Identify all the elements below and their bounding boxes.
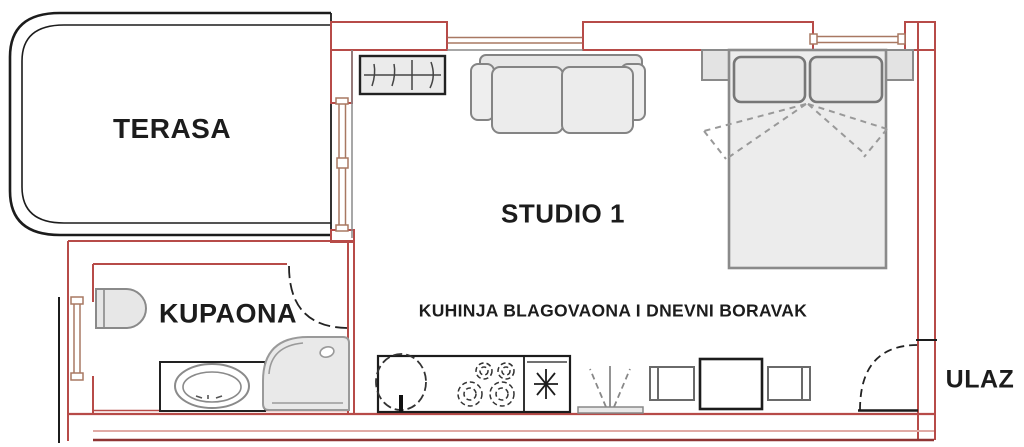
window-bathroom bbox=[59, 297, 83, 443]
window-top-1 bbox=[447, 32, 583, 48]
snowflake-icon bbox=[534, 369, 558, 399]
pillow-left bbox=[734, 57, 805, 102]
toilet bbox=[96, 289, 146, 328]
terrace-label: TERASA bbox=[113, 113, 231, 145]
chair-left bbox=[650, 367, 694, 400]
nightstand-left bbox=[702, 50, 730, 80]
dining-set bbox=[650, 359, 810, 409]
window-top-2 bbox=[810, 34, 905, 44]
dining-table bbox=[700, 359, 762, 409]
entrance-door bbox=[858, 340, 937, 411]
right-wall bbox=[918, 22, 935, 440]
shower bbox=[263, 337, 349, 410]
radiator bbox=[360, 56, 445, 94]
plant bbox=[578, 366, 643, 413]
kitchen-living-label: KUHINJA BLAGOVAONA I DNEVNI BORAVAK bbox=[419, 301, 807, 322]
chair-right bbox=[768, 367, 810, 400]
pillow-right bbox=[810, 57, 882, 102]
floor-plan: TERASA STUDIO 1 KUPAONA KUHINJA BLAGOVAO… bbox=[0, 0, 1024, 447]
bathroom-label: KUPAONA bbox=[159, 299, 297, 330]
studio-label: STUDIO 1 bbox=[501, 199, 625, 230]
vanity-sink bbox=[160, 362, 265, 411]
nightstand-right bbox=[885, 50, 913, 80]
entrance-label: ULAZ bbox=[946, 366, 1015, 395]
bottom-walls bbox=[68, 414, 934, 440]
bathroom-door bbox=[289, 266, 349, 328]
double-bed bbox=[702, 50, 913, 268]
kitchen-counter bbox=[376, 354, 570, 412]
sofa bbox=[471, 55, 645, 133]
